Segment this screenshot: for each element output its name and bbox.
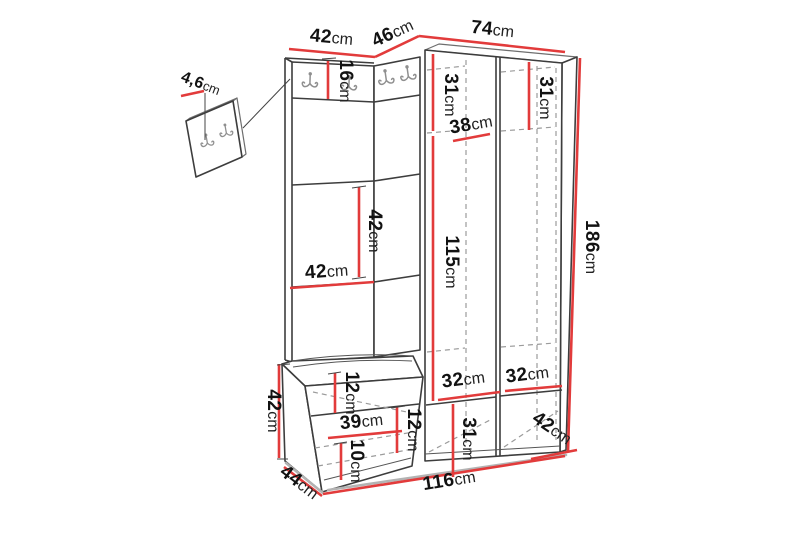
dim-label-hook-strip-height: 16cm bbox=[335, 59, 356, 102]
dim-label-hanging-height: 115cm bbox=[441, 235, 462, 288]
dim-label-seat-thickness: 12cm bbox=[341, 371, 362, 414]
furniture-dimension-diagram: 42cm 46cm 74cm 4,6cm 16cm 31cm 31cm 38cm… bbox=[0, 0, 800, 533]
left-panel-front-face bbox=[292, 62, 374, 362]
dim-line-top-left-width bbox=[289, 49, 375, 57]
hook-panel-detail bbox=[186, 79, 290, 177]
dim-label-bench-height: 42cm bbox=[263, 389, 284, 432]
dim-label-mirror-width: 42cm bbox=[304, 260, 349, 284]
dim-label-total-width: 116cm bbox=[421, 466, 477, 495]
dim-label-right-shelf-height: 31cm bbox=[535, 76, 556, 119]
dim-label-drawer-height: 12cm bbox=[403, 408, 424, 451]
corner-panel-front-face bbox=[374, 57, 420, 357]
dim-label-cubby-height: 31cm bbox=[458, 417, 479, 460]
hook-panel-front bbox=[186, 101, 242, 177]
dim-label-top-left-width: 42cm bbox=[309, 25, 354, 50]
dim-label-plinth-height: 10cm bbox=[346, 439, 367, 482]
corner-panel-outline bbox=[374, 57, 420, 357]
dim-label-mirror-height: 42cm bbox=[364, 209, 385, 252]
dim-label-top-right-width: 74cm bbox=[470, 17, 515, 42]
diagram-canvas: 42cm 46cm 74cm 4,6cm 16cm 31cm 31cm 38cm… bbox=[0, 0, 800, 533]
dim-label-top-mid-width: 46cm bbox=[369, 14, 417, 51]
dim-label-left-shelf-height: 31cm bbox=[440, 73, 461, 116]
left-panel-outline bbox=[285, 58, 374, 362]
dim-label-total-height: 186cm bbox=[581, 220, 602, 274]
detail-leader-line bbox=[243, 79, 290, 128]
